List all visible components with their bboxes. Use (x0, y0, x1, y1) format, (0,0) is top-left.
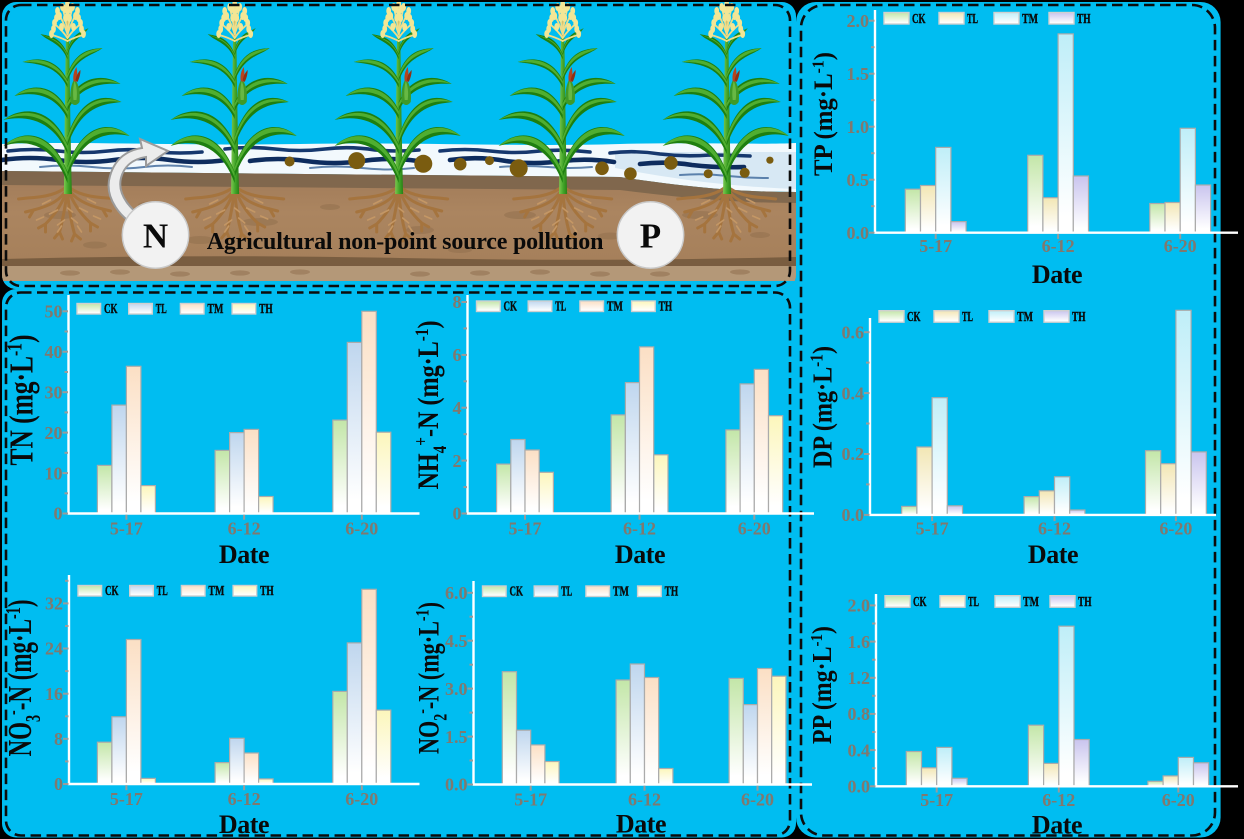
svg-text:40: 40 (45, 342, 63, 362)
svg-text:4.5: 4.5 (445, 631, 468, 651)
svg-text:6.0: 6.0 (445, 583, 468, 603)
svg-text:2.0: 2.0 (847, 11, 870, 31)
svg-text:Date: Date (1032, 811, 1082, 839)
svg-text:TH: TH (665, 585, 679, 600)
svg-text:16: 16 (45, 684, 63, 704)
svg-text:TM: TM (207, 302, 223, 317)
svg-text:20: 20 (45, 423, 63, 443)
svg-text:CK: CK (105, 584, 119, 599)
svg-text:5-17: 5-17 (920, 790, 953, 810)
svg-text:24: 24 (45, 639, 63, 659)
svg-text:0: 0 (453, 504, 462, 524)
svg-text:CK: CK (907, 310, 921, 325)
svg-text:TH: TH (259, 302, 273, 317)
svg-text:NO3--N (mg·L-1): NO3--N (mg·L-1) (0, 600, 45, 757)
svg-text:TL: TL (156, 302, 167, 317)
svg-text:6-12: 6-12 (228, 519, 261, 539)
svg-text:4: 4 (453, 398, 462, 418)
svg-text:0.0: 0.0 (848, 777, 871, 797)
svg-text:6-20: 6-20 (345, 519, 378, 539)
svg-text:0.2: 0.2 (842, 444, 865, 464)
svg-text:TH: TH (260, 584, 274, 599)
svg-text:N: N (143, 217, 168, 256)
svg-text:TH: TH (659, 300, 673, 315)
svg-text:5-17: 5-17 (110, 789, 143, 809)
svg-text:2.0: 2.0 (848, 596, 871, 616)
svg-text:6-12: 6-12 (1038, 518, 1071, 538)
svg-text:3.0: 3.0 (445, 679, 468, 699)
svg-text:6-20: 6-20 (1162, 790, 1195, 810)
svg-text:TM: TM (607, 300, 623, 315)
svg-text:0.5: 0.5 (847, 170, 870, 190)
svg-text:10: 10 (45, 463, 63, 483)
svg-text:6-12: 6-12 (1042, 236, 1075, 256)
svg-text:TL: TL (555, 300, 566, 315)
svg-text:0.4: 0.4 (842, 383, 865, 403)
svg-text:TM: TM (1017, 310, 1033, 325)
svg-text:Date: Date (1028, 540, 1078, 569)
svg-text:1.5: 1.5 (847, 64, 870, 84)
svg-text:5-17: 5-17 (110, 519, 143, 539)
svg-text:0.0: 0.0 (445, 775, 468, 795)
svg-text:5-17: 5-17 (514, 790, 547, 810)
svg-text:TH: TH (1078, 595, 1092, 610)
svg-text:8: 8 (453, 292, 462, 312)
svg-text:Date: Date (219, 540, 269, 569)
svg-text:0.0: 0.0 (842, 505, 865, 525)
svg-text:TM: TM (1022, 12, 1038, 27)
svg-text:TM: TM (1023, 595, 1039, 610)
svg-text:0.0: 0.0 (847, 223, 870, 243)
svg-text:CK: CK (913, 595, 927, 610)
svg-text:TM: TM (613, 585, 629, 600)
svg-text:6: 6 (453, 345, 462, 365)
svg-text:0.4: 0.4 (848, 740, 871, 760)
svg-text:1.0: 1.0 (847, 117, 870, 137)
svg-text:5-17: 5-17 (919, 236, 952, 256)
svg-text:Date: Date (616, 810, 666, 839)
svg-text:Date: Date (1032, 260, 1082, 289)
svg-text:TL: TL (962, 310, 973, 325)
svg-text:0: 0 (54, 504, 63, 524)
svg-text:CK: CK (510, 585, 524, 600)
svg-text:TH: TH (1072, 310, 1086, 325)
svg-text:6-12: 6-12 (228, 789, 261, 809)
svg-text:8: 8 (54, 729, 63, 749)
svg-text:30: 30 (45, 382, 63, 402)
svg-text:1.5: 1.5 (445, 727, 468, 747)
svg-text:1.2: 1.2 (848, 668, 871, 688)
svg-text:6-20: 6-20 (1164, 236, 1197, 256)
svg-text:6-12: 6-12 (628, 790, 661, 810)
svg-text:TL: TL (561, 585, 572, 600)
svg-text:6-12: 6-12 (623, 519, 656, 539)
svg-text:CK: CK (504, 300, 518, 315)
svg-text:2: 2 (453, 451, 462, 471)
svg-text:6-20: 6-20 (741, 790, 774, 810)
svg-text:6-12: 6-12 (1042, 790, 1075, 810)
svg-text:TL: TL (157, 584, 168, 599)
svg-text:0.6: 0.6 (842, 322, 865, 342)
svg-text:TL: TL (968, 595, 979, 610)
svg-text:TH: TH (1077, 12, 1091, 27)
svg-text:6-20: 6-20 (345, 789, 378, 809)
svg-text:0.8: 0.8 (848, 704, 871, 724)
svg-text:CK: CK (104, 302, 118, 317)
svg-text:1.6: 1.6 (848, 632, 871, 652)
svg-text:CK: CK (912, 12, 926, 27)
svg-text:50: 50 (45, 302, 63, 322)
svg-text:6-20: 6-20 (738, 519, 771, 539)
svg-text:5-17: 5-17 (916, 518, 949, 538)
svg-text:5-17: 5-17 (509, 519, 542, 539)
svg-text:32: 32 (45, 594, 63, 614)
svg-text:Date: Date (615, 540, 665, 569)
svg-text:TM: TM (208, 584, 224, 599)
svg-text:Date: Date (219, 810, 269, 839)
svg-text:Agricultural non-point source: Agricultural non-point source pollution (207, 229, 603, 255)
svg-text:0: 0 (54, 774, 63, 794)
svg-text:P: P (640, 217, 661, 256)
svg-text:TL: TL (967, 12, 978, 27)
svg-text:6-20: 6-20 (1159, 518, 1192, 538)
